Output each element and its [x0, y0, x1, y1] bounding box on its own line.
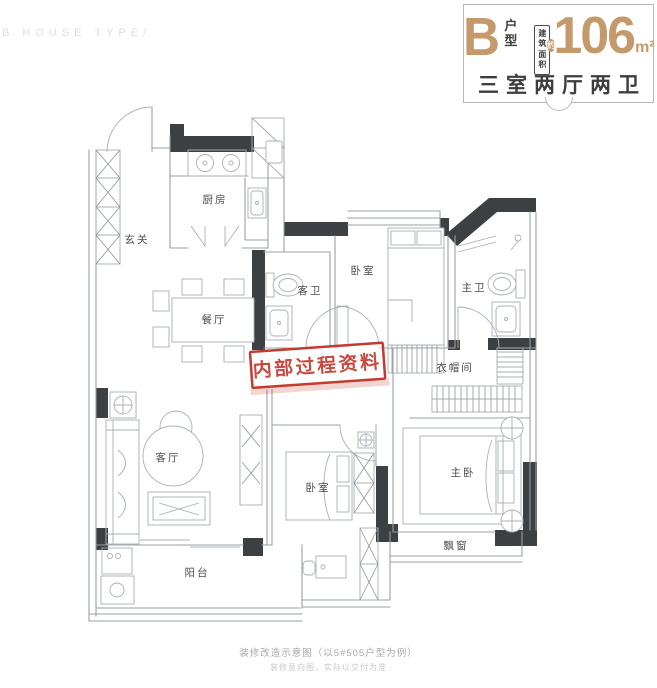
master-toilet [488, 270, 525, 298]
floor-plan: 玄关 厨房 餐厅 客卫 卧室 主卫 衣帽间 客厅 卧室 主卧 飘窗 阳台 内部过… [0, 0, 657, 688]
kitchen-double-door [191, 226, 239, 246]
guest-sink [266, 306, 292, 340]
rug [143, 411, 203, 486]
label-cloakroom: 衣帽间 [436, 361, 474, 374]
label-balcony: 阳台 [185, 566, 210, 579]
balcony-sliding-door [140, 540, 240, 547]
tv-cabinet [240, 415, 262, 505]
label-master-bedroom: 主卧 [451, 466, 476, 479]
washing-machine [101, 548, 134, 604]
coffee-table [148, 492, 210, 525]
cabinet-nook [360, 528, 378, 600]
label-entry: 玄关 [125, 233, 150, 246]
desk-and-chair [303, 556, 346, 578]
column-symbol-bedroom3 [358, 432, 374, 448]
wardrobe-bedroom3 [354, 453, 374, 513]
label-kitchen: 厨房 [203, 193, 228, 206]
caption-line2: 装修意向图，实际以交付为准 [0, 662, 657, 673]
closet-racks [432, 348, 523, 412]
sofa [106, 420, 139, 544]
captions: 装修改造示意图（以5#505户型为例） 装修意向图，实际以交付为准 [0, 645, 657, 673]
stamp: 内部过程资料 [248, 342, 390, 395]
water-heater [266, 141, 282, 163]
kitchen-sink [248, 188, 266, 218]
label-guest-bath: 客卫 [298, 284, 323, 297]
label-bedroom2: 卧室 [351, 264, 376, 277]
master-sink [492, 302, 520, 336]
ac-symbol-living [110, 392, 136, 418]
ac-symbols-master [501, 417, 523, 532]
label-master-bath: 主卫 [462, 282, 487, 294]
master-shower-shelf [458, 235, 521, 252]
caption-line1: 装修改造示意图（以5#505户型为例） [0, 645, 657, 659]
bed-bedroom2 [388, 228, 444, 345]
label-bay-window: 飘窗 [444, 539, 469, 552]
label-dining: 餐厅 [202, 313, 227, 326]
floorplan-page: B HOUSE TYPE/ B 户 型 建筑 面积 约 106 m² 三室两厅两… [0, 0, 657, 688]
entry-shaft [96, 150, 120, 264]
label-bedroom3: 卧室 [306, 481, 331, 494]
label-living: 客厅 [156, 451, 181, 464]
stove [188, 150, 246, 176]
